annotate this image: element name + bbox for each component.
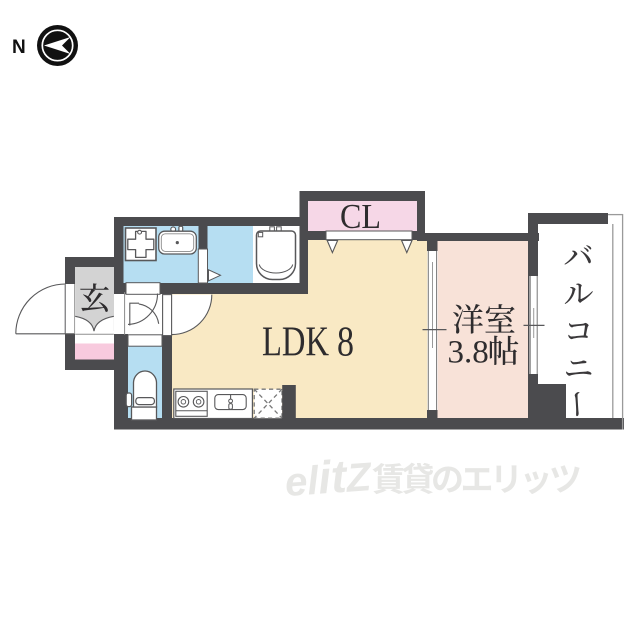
svg-text:LDK: LDK <box>262 320 329 366</box>
svg-text:N: N <box>12 37 26 58</box>
svg-text:3.8: 3.8 <box>448 335 489 371</box>
svg-text:CL: CL <box>340 197 381 236</box>
svg-text:8: 8 <box>337 320 354 366</box>
svg-text:elitZ: elitZ <box>283 448 374 506</box>
